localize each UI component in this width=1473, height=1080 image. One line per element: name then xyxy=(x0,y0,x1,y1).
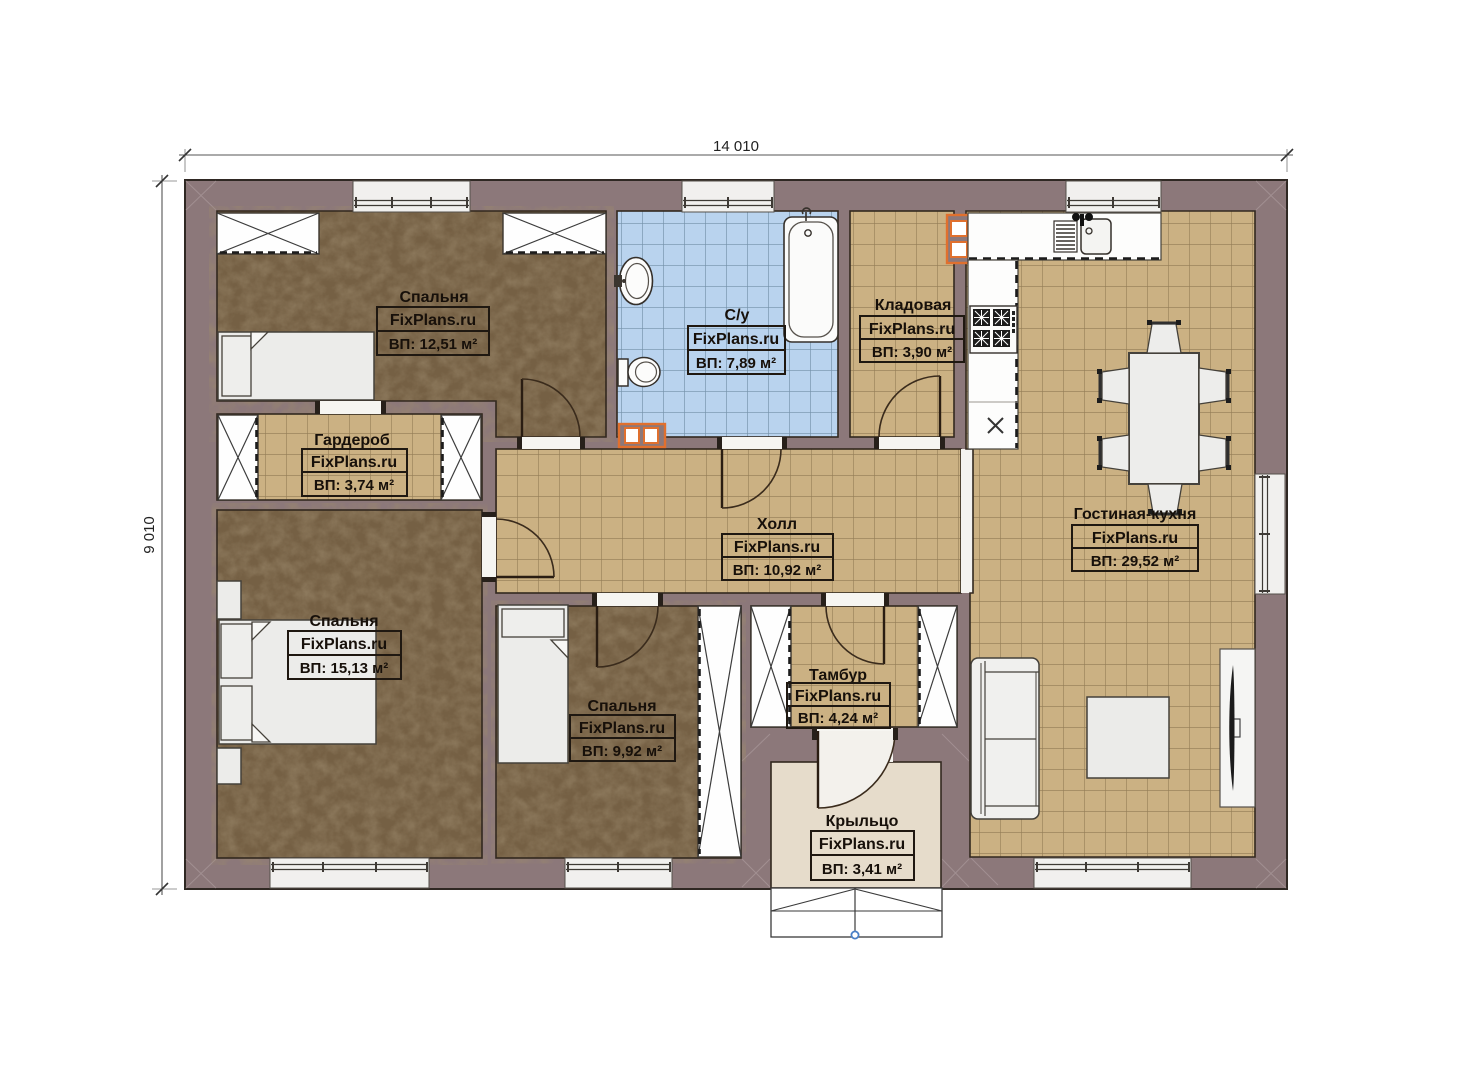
svg-text:Гардероб: Гардероб xyxy=(314,432,390,449)
svg-text:ВП: 3,41 м²: ВП: 3,41 м² xyxy=(822,861,902,878)
svg-text:FixPlans.ru: FixPlans.ru xyxy=(734,539,820,556)
svg-text:ВП: 7,89 м²: ВП: 7,89 м² xyxy=(696,355,776,372)
svg-text:Спальня: Спальня xyxy=(309,613,378,630)
svg-text:9 010: 9 010 xyxy=(141,516,158,554)
svg-text:FixPlans.ru: FixPlans.ru xyxy=(693,331,779,348)
svg-text:Холл: Холл xyxy=(757,516,797,533)
svg-text:FixPlans.ru: FixPlans.ru xyxy=(579,720,665,737)
svg-text:Гостиная-кухня: Гостиная-кухня xyxy=(1074,506,1197,523)
svg-text:Спальня: Спальня xyxy=(587,698,656,715)
svg-text:FixPlans.ru: FixPlans.ru xyxy=(869,321,955,338)
svg-text:Кладовая: Кладовая xyxy=(875,297,952,314)
svg-text:ВП: 3,90 м²: ВП: 3,90 м² xyxy=(872,344,952,361)
svg-text:ВП: 3,74 м²: ВП: 3,74 м² xyxy=(314,477,394,494)
svg-text:ВП: 29,52 м²: ВП: 29,52 м² xyxy=(1091,553,1180,570)
svg-text:Спальня: Спальня xyxy=(399,289,468,306)
svg-text:ВП: 4,24 м²: ВП: 4,24 м² xyxy=(798,710,878,727)
svg-text:FixPlans.ru: FixPlans.ru xyxy=(819,836,905,853)
svg-text:ВП: 9,92 м²: ВП: 9,92 м² xyxy=(582,743,662,760)
svg-text:ВП: 12,51 м²: ВП: 12,51 м² xyxy=(389,336,478,353)
svg-text:Тамбур: Тамбур xyxy=(809,667,867,684)
svg-text:С/у: С/у xyxy=(725,307,750,324)
svg-text:FixPlans.ru: FixPlans.ru xyxy=(311,454,397,471)
svg-text:ВП: 10,92 м²: ВП: 10,92 м² xyxy=(733,562,822,579)
svg-text:FixPlans.ru: FixPlans.ru xyxy=(795,688,881,705)
svg-text:FixPlans.ru: FixPlans.ru xyxy=(301,636,387,653)
svg-text:FixPlans.ru: FixPlans.ru xyxy=(1092,530,1178,547)
svg-text:14 010: 14 010 xyxy=(713,138,759,155)
svg-text:ВП: 15,13 м²: ВП: 15,13 м² xyxy=(300,660,389,677)
svg-text:FixPlans.ru: FixPlans.ru xyxy=(390,312,476,329)
svg-text:Крыльцо: Крыльцо xyxy=(826,813,899,830)
